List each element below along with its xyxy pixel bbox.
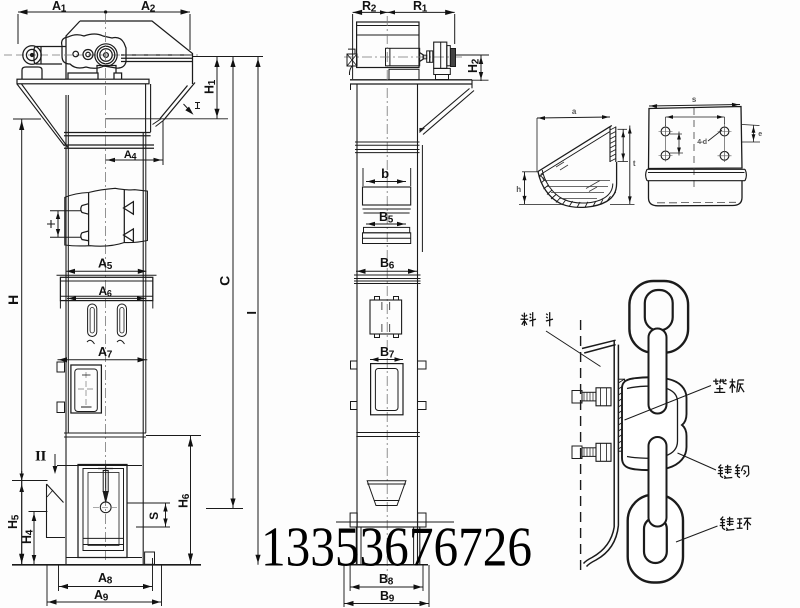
svg-text:4-d: 4-d <box>697 139 707 146</box>
svg-text:S: S <box>147 512 161 520</box>
svg-text:h: h <box>516 185 521 194</box>
svg-text:13353676726: 13353676726 <box>261 517 532 579</box>
svg-text:II: II <box>35 449 47 465</box>
svg-text:A4: A4 <box>124 149 137 162</box>
svg-text:I: I <box>244 311 259 314</box>
svg-text:b: b <box>381 166 389 181</box>
svg-text:e: e <box>758 131 762 138</box>
svg-text:H: H <box>5 295 21 305</box>
svg-text:C: C <box>217 276 233 286</box>
